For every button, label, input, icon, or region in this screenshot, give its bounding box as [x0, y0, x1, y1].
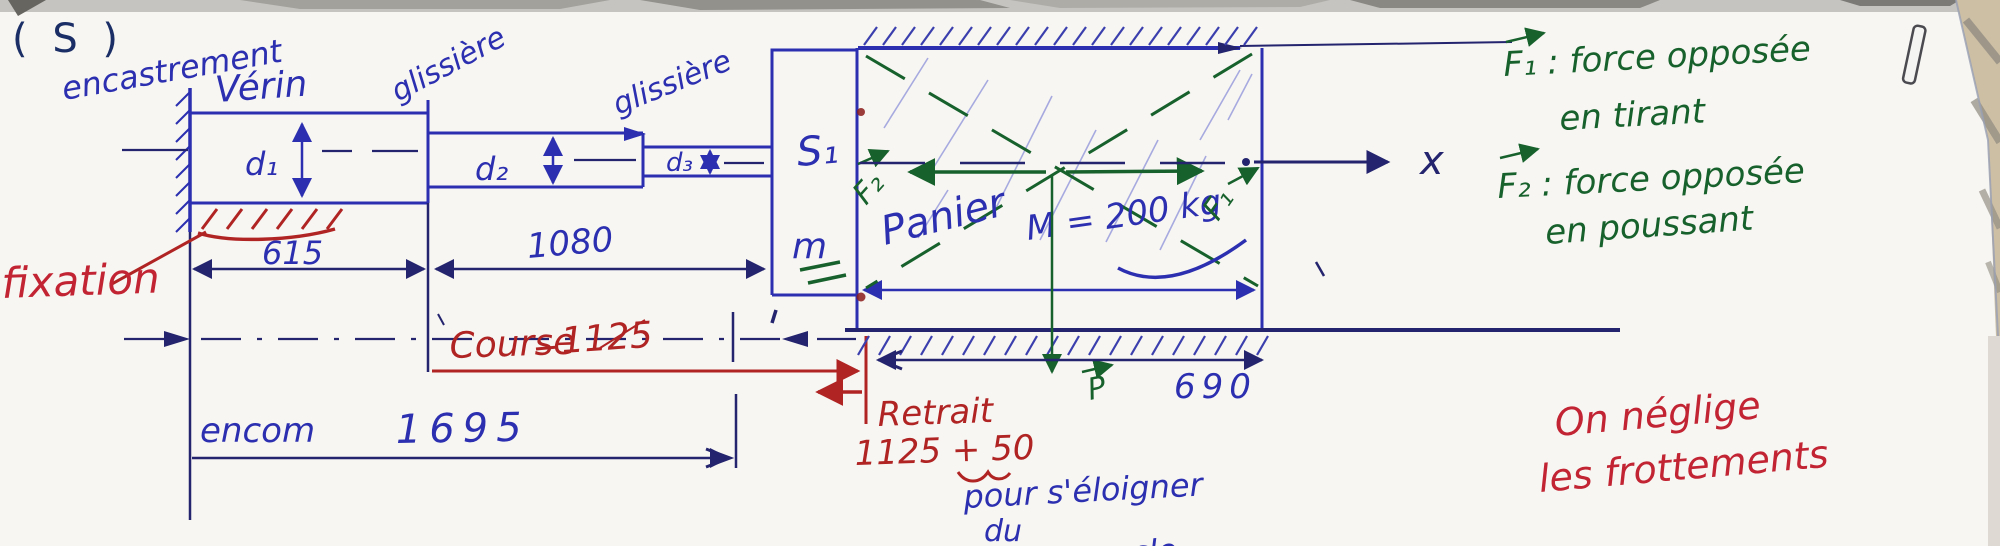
dim-1695-value: 1695 [395, 405, 530, 453]
encom-label: encom [200, 411, 315, 451]
dim-1080-value: 1080 [525, 220, 615, 267]
d3-label: d₃ [666, 148, 693, 178]
x-axis-label: x [1418, 138, 1444, 184]
m-label: m [792, 226, 827, 267]
retrait-value: 1125 + 50 [854, 428, 1035, 474]
fixation-label: fixation [1, 254, 161, 308]
s1-label: S₁ [795, 127, 840, 176]
hand-drawn-cylinder-diagram: ( S ) encastrement Vérin d₁ glissière gl… [0, 0, 2000, 546]
system-label: ( S ) [12, 16, 124, 62]
retrait-label: Retrait [877, 391, 995, 435]
dim-615-value: 615 [262, 234, 323, 272]
course-value: 1125 [560, 315, 654, 362]
d2-label: d₂ [475, 150, 508, 188]
note-f1-line2: en tirant [1558, 91, 1707, 139]
course-label: Course [449, 322, 576, 367]
verin-label: Vérin [214, 64, 309, 111]
dim-690-value: 690 [1174, 367, 1257, 407]
scanned-sheet: ( S ) encastrement Vérin d₁ glissière gl… [0, 0, 2000, 546]
d1-label: d₁ [245, 145, 278, 183]
